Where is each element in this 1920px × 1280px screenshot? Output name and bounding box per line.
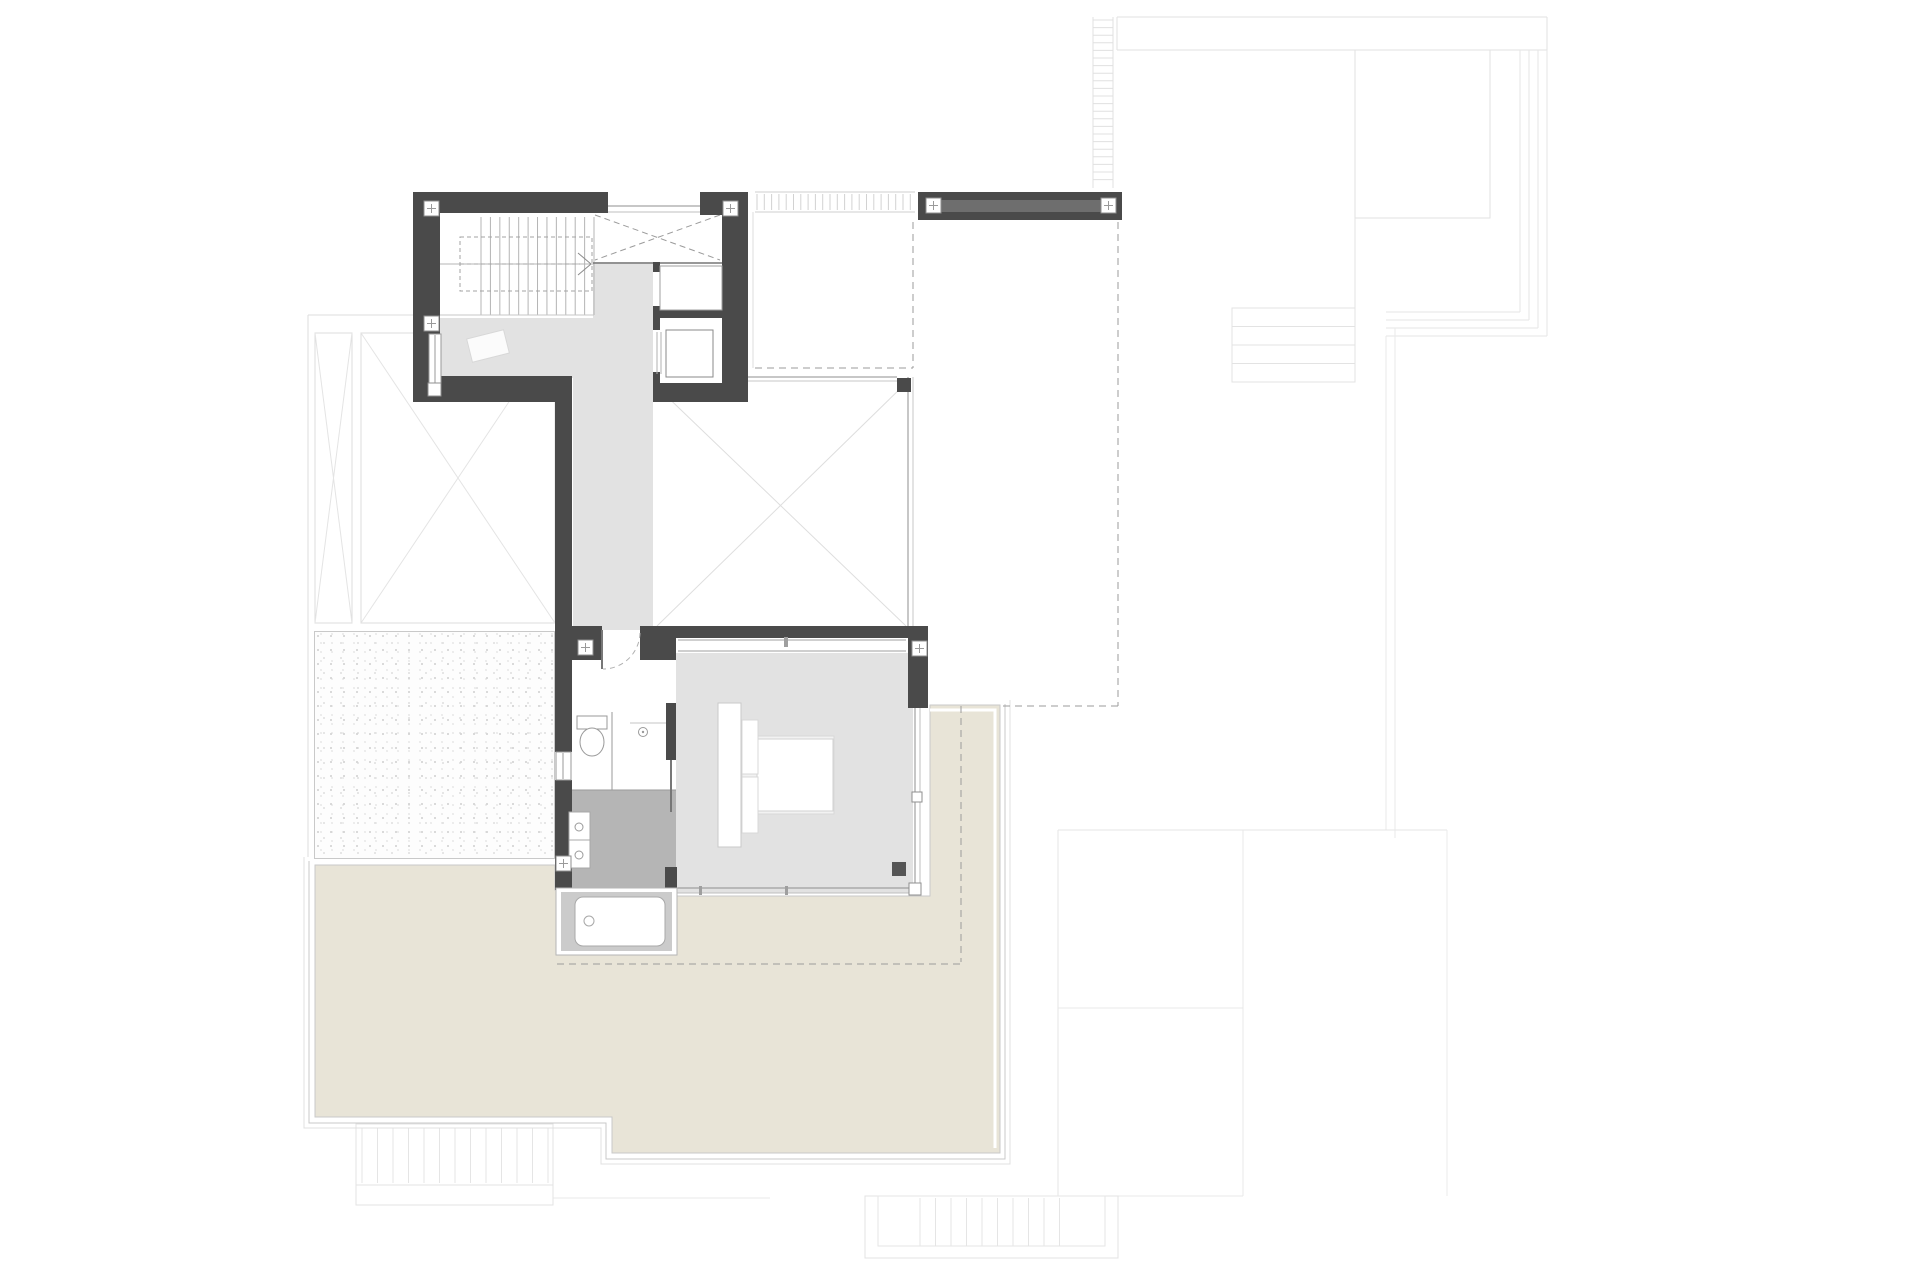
stair-treads — [481, 217, 585, 315]
column-marker — [912, 641, 927, 656]
corridor-floor-upper — [593, 262, 653, 378]
floor-plan-canvas — [0, 0, 1920, 1280]
column-marker — [424, 316, 439, 331]
column-marker — [1101, 198, 1116, 213]
column — [892, 862, 906, 876]
bed-mattress — [757, 739, 833, 811]
bed-pillow — [742, 720, 758, 774]
column-marker — [926, 198, 941, 213]
context-room-outline — [1355, 50, 1490, 218]
closet-room — [660, 266, 722, 310]
pergola-beam-inner — [930, 200, 1110, 212]
garden-stair-south-inner — [878, 1196, 1105, 1246]
context-garden-stair-treads — [1232, 308, 1355, 382]
corridor-floor — [573, 378, 653, 630]
elevator-car — [666, 330, 713, 377]
window-mullion — [785, 886, 788, 895]
column-marker — [424, 201, 439, 216]
wall-bath-partition — [666, 703, 676, 760]
wall-bedroom-north-jamb — [640, 626, 676, 660]
wall-core-east — [722, 215, 748, 402]
column-marker — [578, 640, 593, 655]
wall-hall-south — [426, 376, 572, 402]
garden-stair-south — [865, 1196, 1118, 1258]
pergola-louvers — [757, 194, 910, 210]
floor-plan-drawing — [0, 0, 1920, 1280]
wall-closet-divider — [655, 310, 722, 318]
column-marker — [556, 856, 571, 871]
wall-niche-marker — [909, 883, 921, 895]
garden-stair-south-treads — [920, 1198, 1060, 1246]
wall-west-spine — [555, 402, 572, 752]
window-mullion — [699, 886, 702, 895]
context-stair-treads — [1093, 20, 1113, 180]
wall-niche-marker — [428, 383, 441, 396]
door-swing-bedroom — [603, 633, 640, 669]
shower-drain-dot — [642, 731, 644, 733]
window-mullion — [784, 637, 788, 647]
wall-bedroom-northeast — [908, 626, 928, 708]
column — [897, 378, 911, 392]
toilet-tank — [577, 716, 607, 729]
window-mullion-box — [912, 792, 922, 802]
column-marker — [723, 201, 738, 216]
garden-stair-southwest-treads — [362, 1128, 548, 1183]
bathtub — [575, 897, 665, 946]
wall-stair-north — [413, 192, 608, 213]
wall-bedroom-north — [676, 626, 913, 638]
stair-landing-floor — [440, 318, 593, 378]
toilet-bowl — [580, 728, 604, 756]
bed-pillow — [742, 777, 758, 833]
wall-core-south — [653, 383, 748, 402]
bed-headboard — [718, 703, 741, 847]
wall-core-stub — [653, 262, 660, 272]
